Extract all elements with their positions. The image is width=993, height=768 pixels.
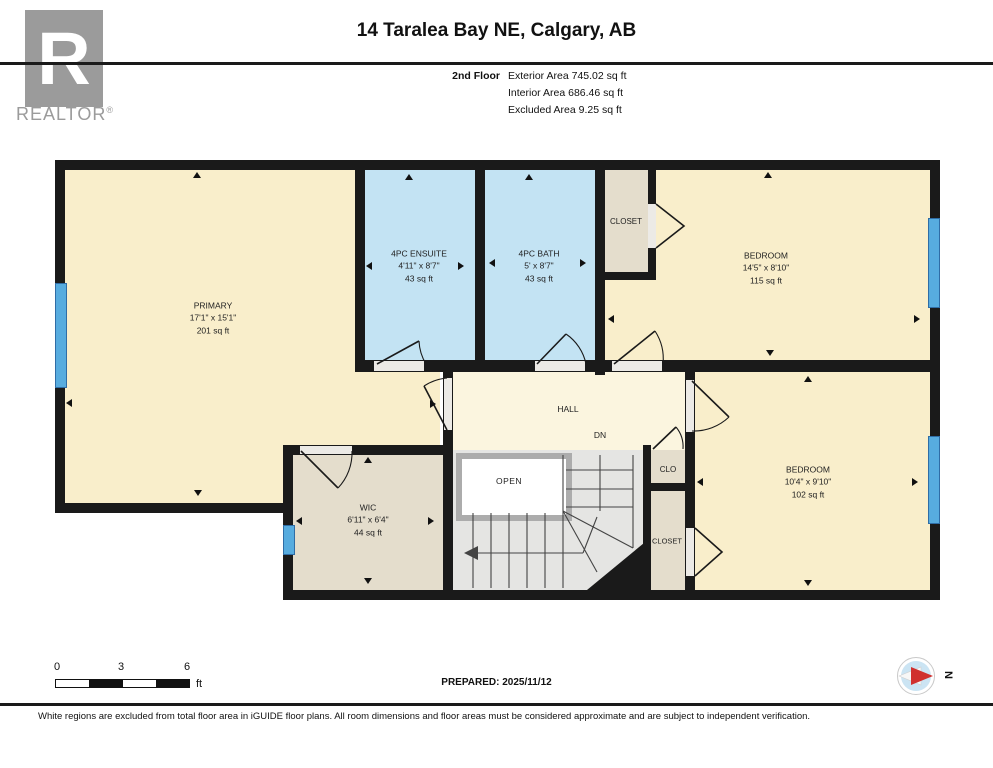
wall: [595, 165, 605, 375]
dimension-arrow: [458, 262, 464, 270]
scale-tick-0: 0: [47, 661, 67, 673]
room-label-primary: PRIMARY 17'1" x 15'1" 201 sq ft: [190, 300, 237, 337]
footer-divider: [0, 703, 993, 706]
wall: [283, 445, 293, 600]
wall: [55, 503, 293, 513]
dimension-arrow: [580, 259, 586, 267]
interior-area: Interior Area 686.46 sq ft: [508, 87, 623, 99]
scale-bar: [55, 679, 190, 688]
dimension-arrow: [193, 172, 201, 178]
dimension-arrow: [364, 457, 372, 463]
wall: [643, 445, 651, 595]
floorplan-page: R REALTOR® 14 Taralea Bay NE, Calgary, A…: [0, 0, 993, 768]
room-label-bedroom-top: BEDROOM 14'5" x 8'10" 115 sq ft: [743, 250, 790, 287]
excluded-area: Excluded Area 9.25 sq ft: [508, 104, 622, 116]
header-divider: [0, 62, 993, 65]
room-label-hall: HALL: [557, 403, 578, 415]
registered-mark: ®: [106, 105, 114, 115]
door-opening: [535, 361, 585, 371]
wall: [475, 165, 485, 368]
dimension-arrow: [66, 399, 72, 407]
dimension-arrow: [804, 580, 812, 586]
window: [928, 436, 940, 524]
room-label-closet-bottom: CLOSET: [652, 537, 682, 548]
realtor-logo-text: REALTOR®: [0, 104, 130, 125]
room-label-closet-top: CLOSET: [610, 216, 642, 228]
compass-icon: N: [898, 658, 955, 695]
dimension-arrow: [804, 376, 812, 382]
scale-tick-3: 3: [111, 661, 131, 673]
wall: [55, 160, 940, 170]
dimension-arrow: [366, 262, 372, 270]
wall: [283, 590, 940, 600]
scale-tick-6: 6: [177, 661, 197, 673]
door-opening: [686, 528, 694, 576]
room-label-bedroom-bottom: BEDROOM 10'4" x 9'10" 102 sq ft: [785, 464, 832, 501]
room-label-clo: CLO: [660, 464, 676, 476]
room-primary-lower: [65, 445, 283, 505]
dimension-arrow: [405, 174, 413, 180]
disclaimer-text: White regions are excluded from total fl…: [38, 711, 968, 722]
dimension-arrow: [764, 172, 772, 178]
door-opening: [686, 380, 694, 432]
dimension-arrow: [194, 490, 202, 496]
dimension-arrow: [608, 315, 614, 323]
page-title: 14 Taralea Bay NE, Calgary, AB: [0, 20, 993, 42]
room-label-bath: 4PC BATH 5' x 8'7" 43 sq ft: [519, 248, 560, 285]
open-label: OPEN: [496, 475, 522, 487]
dimension-arrow: [364, 578, 372, 584]
dimension-arrow: [525, 174, 533, 180]
floor-label: 2nd Floor: [330, 70, 500, 82]
room-label-wic: WIC 6'11" x 6'4" 44 sq ft: [347, 502, 388, 539]
stairs-dn-label: DN: [594, 429, 606, 441]
dimension-arrow: [766, 350, 774, 356]
dimension-arrow: [430, 400, 436, 408]
dimension-arrow: [489, 259, 495, 267]
wall: [648, 166, 656, 204]
dimension-arrow: [296, 517, 302, 525]
window: [55, 283, 67, 388]
door-opening: [374, 361, 424, 371]
room-label-ensuite: 4PC ENSUITE 4'11" x 8'7" 43 sq ft: [391, 248, 447, 285]
door-opening: [444, 378, 452, 430]
dimension-arrow: [914, 315, 920, 323]
door-opening: [648, 204, 656, 248]
exterior-area: Exterior Area 745.02 sq ft: [508, 70, 626, 82]
door-opening: [300, 446, 352, 454]
window: [283, 525, 295, 555]
dimension-arrow: [912, 478, 918, 486]
wall: [355, 165, 365, 368]
dimension-arrow: [428, 517, 434, 525]
wall: [648, 248, 656, 280]
door-opening: [612, 361, 662, 371]
dimension-arrow: [697, 478, 703, 486]
window: [928, 218, 940, 308]
